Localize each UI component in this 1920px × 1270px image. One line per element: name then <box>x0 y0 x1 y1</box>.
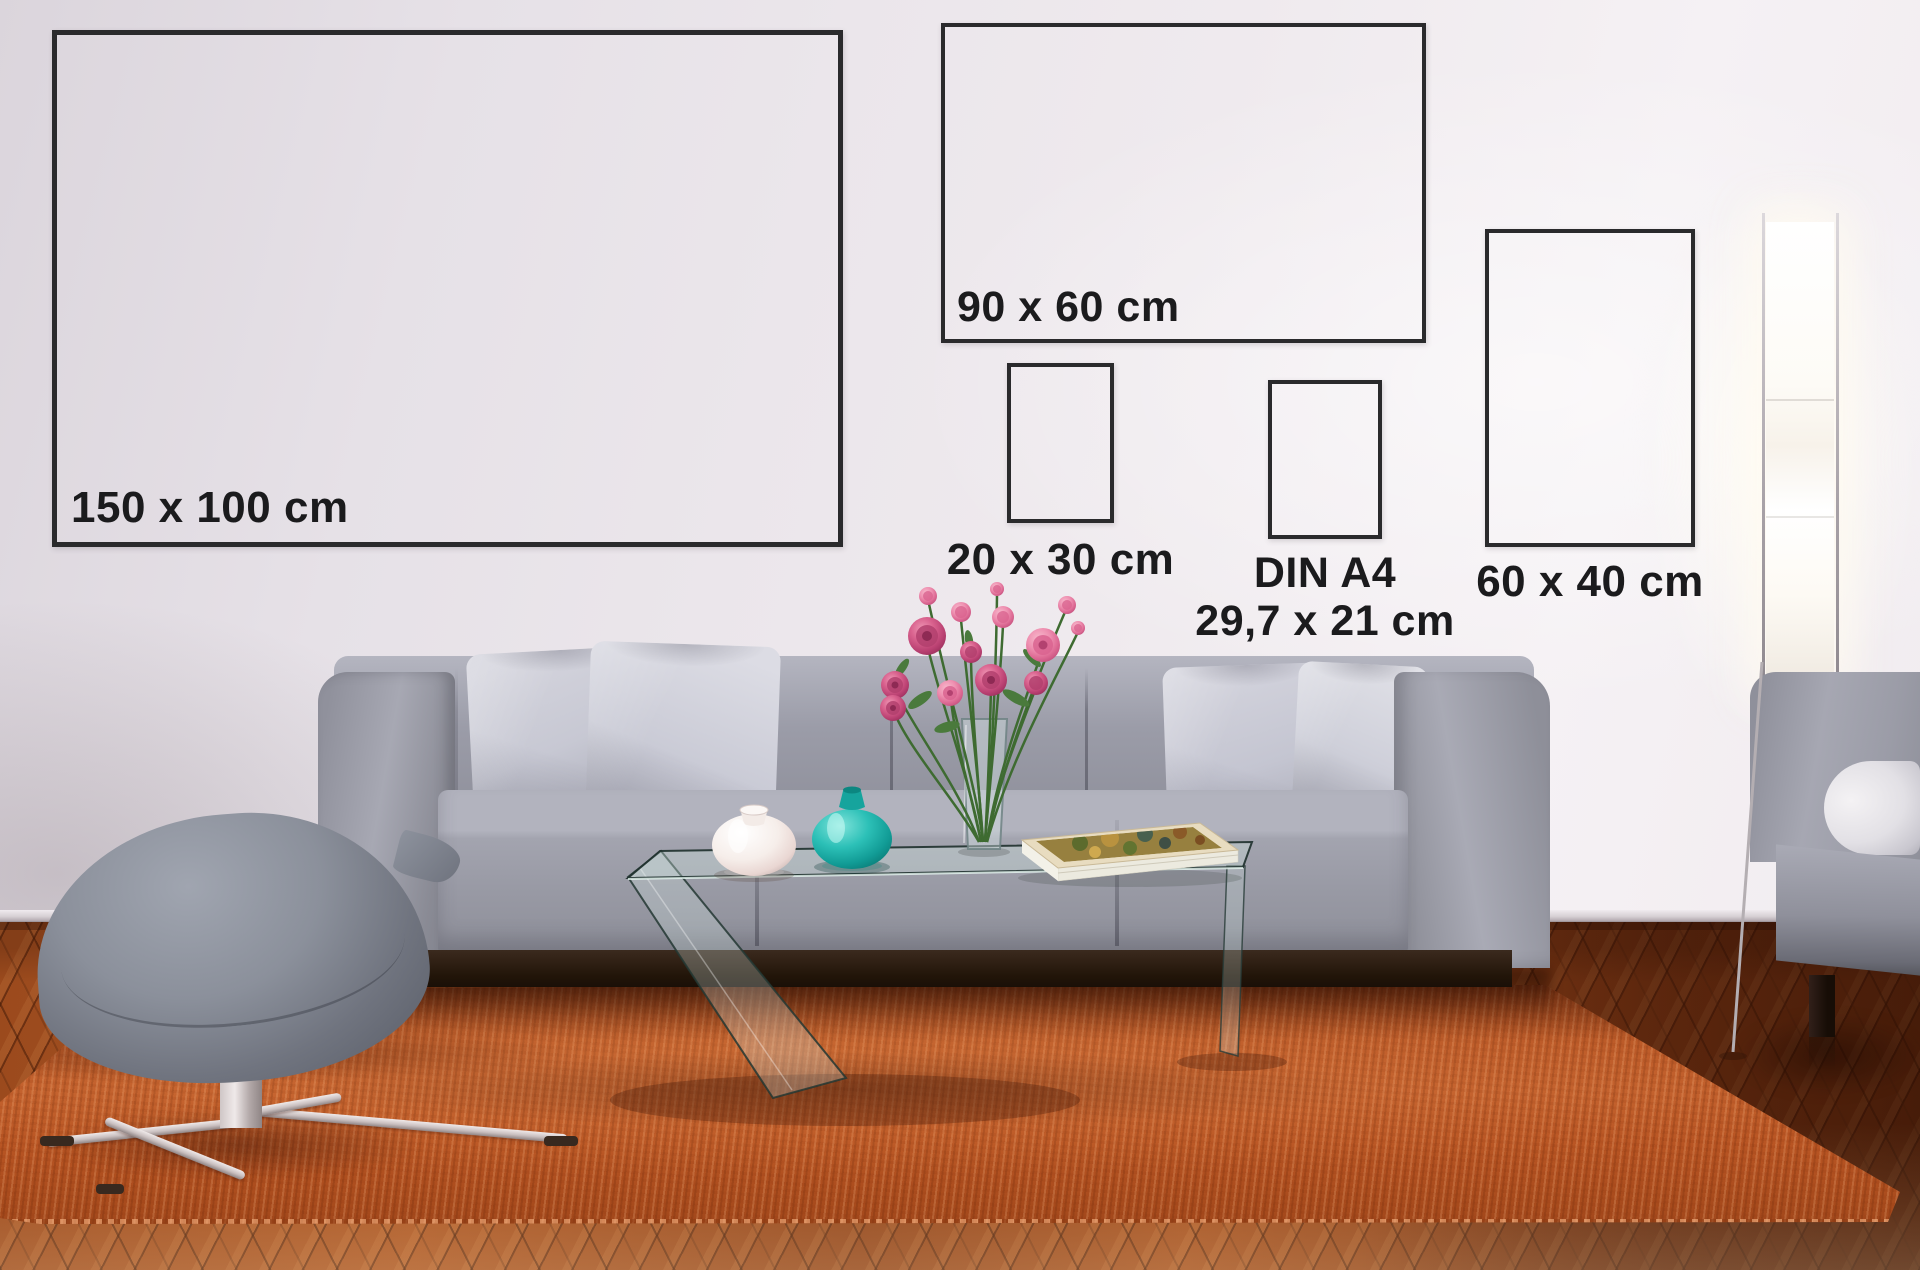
ottoman-foot-pad <box>40 1136 74 1146</box>
size-label-60x40: 60 x 40 cm <box>1476 557 1704 606</box>
size-frame-60x40: 60 x 40 cm <box>1485 229 1695 547</box>
ottoman-stool <box>24 806 464 1186</box>
size-frame-150x100: 150 x 100 cm <box>52 30 843 547</box>
sofa-armrest-right <box>1394 672 1550 968</box>
ottoman-foot-pad <box>544 1136 578 1146</box>
right-sofa-leg <box>1809 975 1835 1037</box>
sofa-right <box>1750 672 1920 1076</box>
size-frame-20x30: 20 x 30 cm <box>1007 363 1114 523</box>
size-frame-90x60: 90 x 60 cm <box>941 23 1426 343</box>
ottoman-seat <box>27 801 437 1096</box>
size-label-20x30: 20 x 30 cm <box>947 535 1175 584</box>
floor-lamp-diffuser <box>1766 222 1834 688</box>
living-room-scene: 150 x 100 cm 90 x 60 cm 20 x 30 cm DIN A… <box>0 0 1920 1270</box>
size-label-din-a4-line2: 29,7 x 21 cm <box>1195 597 1454 645</box>
size-label-150x100: 150 x 100 cm <box>71 483 349 532</box>
ottoman-seat-edge <box>392 829 465 887</box>
sofa-seat-seam <box>755 820 759 946</box>
right-sofa-leg-reflection <box>1809 1037 1835 1071</box>
sofa-wood-base <box>360 950 1512 987</box>
right-sofa-seat <box>1776 844 1920 975</box>
size-frame-din-a4: DIN A4 29,7 x 21 cm <box>1268 380 1382 539</box>
size-label-90x60: 90 x 60 cm <box>957 283 1180 331</box>
ottoman-foot-pad <box>96 1184 124 1194</box>
sofa-main <box>318 642 1550 987</box>
sofa-back-seam <box>1085 668 1088 808</box>
sofa-seat-seam <box>1115 820 1119 946</box>
bolster-pillow <box>1824 761 1920 855</box>
sofa-back-seam <box>890 668 893 808</box>
size-label-din-a4: DIN A4 29,7 x 21 cm <box>1195 549 1454 645</box>
sofa-seat <box>438 790 1408 952</box>
sofa-back-seam <box>455 668 458 808</box>
floor-lamp-rail-right <box>1836 213 1839 693</box>
size-label-din-a4-line1: DIN A4 <box>1195 549 1454 597</box>
floor-lamp-rail-left <box>1762 213 1765 693</box>
